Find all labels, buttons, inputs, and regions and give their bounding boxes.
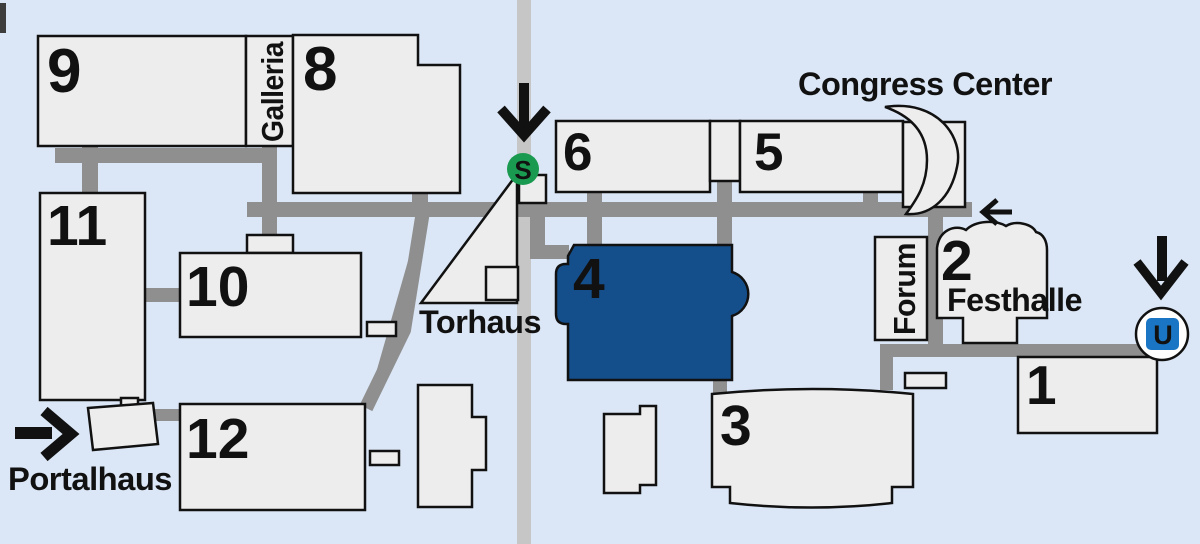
- road-stub-hall6: [587, 192, 602, 204]
- hall-1-label: 1: [1026, 354, 1057, 416]
- road-stub-hall8: [412, 193, 428, 204]
- hall-3-label: 3: [720, 394, 752, 458]
- service-building-west: [418, 385, 486, 507]
- hall-5-6-link: [710, 121, 740, 181]
- road-main-horizontal: [247, 202, 972, 217]
- fairground-map: S U 9 8 11 10 12 6 5 4 2 3 1 Congress Ce…: [0, 0, 1200, 544]
- hall-12-label: 12: [186, 407, 249, 471]
- hall-9-label: 9: [47, 37, 81, 106]
- ubahn-icon-letter: U: [1153, 320, 1173, 350]
- road-lower-horizontal: [880, 344, 1150, 357]
- torhaus-annex: [486, 267, 518, 300]
- portalhaus-entrance-arrow-right-icon: [15, 411, 71, 457]
- portalhaus-building: [88, 403, 158, 450]
- road-stub-hall5-link: [717, 181, 732, 204]
- marker-hall10-east: [367, 322, 396, 336]
- hall-6-label: 6: [563, 123, 592, 182]
- marker-hall12-east: [370, 451, 399, 465]
- marker-festhalle-south: [905, 373, 946, 388]
- road-stub-hall6-hall4: [587, 216, 602, 247]
- service-building-center: [604, 406, 656, 493]
- festhalle-label: Festhalle: [947, 282, 1082, 318]
- road-stub-hall4-top: [717, 216, 732, 247]
- road-stub-hall11-hall10: [145, 288, 181, 302]
- road-stub-hall3-right: [880, 356, 893, 390]
- hall-10-annex: [247, 235, 293, 253]
- hall-11-label: 11: [47, 194, 107, 258]
- forum-label: Forum: [887, 243, 922, 335]
- ubahn-icon: U: [1136, 308, 1188, 360]
- festhalle-entrance-arrow-left-icon: [983, 200, 1012, 224]
- hall-5-label: 5: [754, 123, 783, 182]
- sbahn-icon: S: [507, 153, 539, 185]
- ubahn-entrance-arrow-down-icon: [1137, 236, 1185, 293]
- road-stub-hall4-left: [530, 245, 569, 259]
- map-canvas: S U 9 8 11 10 12 6 5 4 2 3 1 Congress Ce…: [0, 0, 1200, 544]
- sbahn-entrance-arrow-down-icon: [501, 83, 547, 135]
- hall-4-label: 4: [573, 247, 605, 311]
- sbahn-icon-letter: S: [514, 155, 531, 185]
- portalhaus-label: Portalhaus: [8, 461, 172, 497]
- road-diagonal-torhaus: [366, 205, 424, 408]
- road-stub-hall5: [863, 192, 878, 204]
- hall-8-label: 8: [303, 35, 337, 104]
- hall-10-label: 10: [186, 255, 249, 319]
- road-galleria-vertical: [262, 147, 277, 237]
- map-edge-fragment: [0, 3, 6, 33]
- galleria-label: Galleria: [255, 41, 290, 142]
- road-stub-hall9-hall11: [82, 146, 98, 195]
- torhaus-label: Torhaus: [419, 304, 541, 340]
- congress-center-label: Congress Center: [798, 66, 1052, 102]
